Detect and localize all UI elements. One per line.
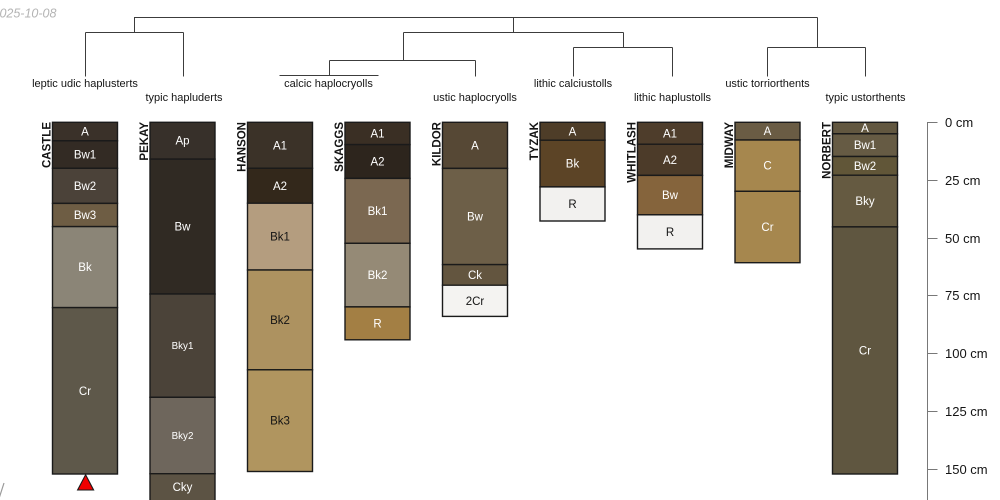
svg-text:100 cm: 100 cm bbox=[945, 346, 988, 361]
svg-text:Bw3: Bw3 bbox=[74, 210, 96, 222]
svg-text:0 cm: 0 cm bbox=[945, 115, 973, 130]
svg-text:Bk2: Bk2 bbox=[270, 315, 290, 327]
svg-text:PEKAY: PEKAY bbox=[139, 122, 151, 161]
svg-text:Cr: Cr bbox=[761, 222, 773, 234]
svg-text:Bk: Bk bbox=[566, 159, 580, 171]
svg-text:A2: A2 bbox=[273, 181, 287, 193]
svg-text:leptic udic haplusterts: leptic udic haplusterts bbox=[32, 78, 138, 90]
svg-text:HANSON: HANSON bbox=[237, 122, 249, 172]
svg-text:Bk2: Bk2 bbox=[368, 270, 388, 282]
svg-text:typic ustorthents: typic ustorthents bbox=[825, 92, 906, 104]
svg-text:R: R bbox=[666, 227, 674, 239]
svg-text:A1: A1 bbox=[273, 140, 287, 152]
svg-text:TYZAK: TYZAK bbox=[529, 121, 541, 160]
svg-text:Cr: Cr bbox=[859, 346, 871, 358]
svg-text:Cky: Cky bbox=[173, 482, 193, 494]
svg-text:R: R bbox=[373, 318, 381, 330]
svg-text:A: A bbox=[471, 140, 479, 152]
svg-text:ustic torriorthents: ustic torriorthents bbox=[725, 78, 810, 90]
svg-text:MIDWAY: MIDWAY bbox=[724, 122, 736, 169]
svg-text:A: A bbox=[764, 126, 772, 138]
svg-text:SKAGGS: SKAGGS bbox=[334, 122, 346, 172]
svg-text:lithic calciustolls: lithic calciustolls bbox=[534, 78, 613, 90]
svg-text:WHITLASH: WHITLASH bbox=[627, 122, 639, 183]
svg-text:Bw2: Bw2 bbox=[74, 181, 96, 193]
svg-text:C: C bbox=[763, 161, 771, 173]
svg-text:75 cm: 75 cm bbox=[945, 288, 980, 303]
svg-text:Bw: Bw bbox=[175, 222, 192, 234]
svg-text:A1: A1 bbox=[370, 129, 384, 141]
svg-text:125 cm: 125 cm bbox=[945, 404, 988, 419]
svg-text:2Cr: 2Cr bbox=[466, 296, 485, 308]
svg-text:R: R bbox=[568, 199, 576, 211]
svg-text:NORBERT: NORBERT bbox=[822, 122, 834, 179]
svg-text:25 cm: 25 cm bbox=[945, 173, 980, 188]
svg-text:CASTLE: CASTLE bbox=[42, 122, 54, 168]
svg-text:A: A bbox=[81, 127, 89, 139]
svg-text:Bw: Bw bbox=[662, 190, 679, 202]
svg-text:Bk1: Bk1 bbox=[270, 232, 290, 244]
svg-text:Bk3: Bk3 bbox=[270, 416, 290, 428]
svg-text:ustic haplocryolls: ustic haplocryolls bbox=[433, 92, 517, 104]
svg-text:Ck: Ck bbox=[468, 270, 482, 282]
svg-text:A2: A2 bbox=[370, 157, 384, 169]
svg-text:Ap: Ap bbox=[175, 136, 189, 148]
svg-text:Bw2: Bw2 bbox=[854, 161, 876, 173]
svg-text:2025-10-08: 2025-10-08 bbox=[0, 7, 56, 21]
svg-text:A2: A2 bbox=[663, 155, 677, 167]
svg-text:Bw1: Bw1 bbox=[74, 150, 96, 162]
svg-text:Bky2: Bky2 bbox=[172, 431, 194, 442]
svg-text:typic hapluderts: typic hapluderts bbox=[145, 92, 223, 104]
svg-text:150 cm: 150 cm bbox=[945, 462, 988, 477]
svg-text:calcic haplocryolls: calcic haplocryolls bbox=[284, 78, 373, 90]
svg-text:Bk1: Bk1 bbox=[368, 206, 388, 218]
svg-text:KILDOR: KILDOR bbox=[432, 121, 444, 166]
svg-text:Bk: Bk bbox=[78, 262, 92, 274]
svg-text:lithic haplustolls: lithic haplustolls bbox=[634, 92, 712, 104]
svg-text:Bky1: Bky1 bbox=[172, 341, 194, 352]
svg-text:Bky: Bky bbox=[855, 196, 874, 208]
svg-text:Bw1: Bw1 bbox=[854, 140, 876, 152]
svg-text:Cr: Cr bbox=[79, 386, 91, 398]
svg-text:A: A bbox=[569, 126, 577, 138]
svg-text:Bw: Bw bbox=[467, 212, 484, 224]
svg-text:50 cm: 50 cm bbox=[945, 231, 980, 246]
svg-text:A1: A1 bbox=[663, 128, 677, 140]
